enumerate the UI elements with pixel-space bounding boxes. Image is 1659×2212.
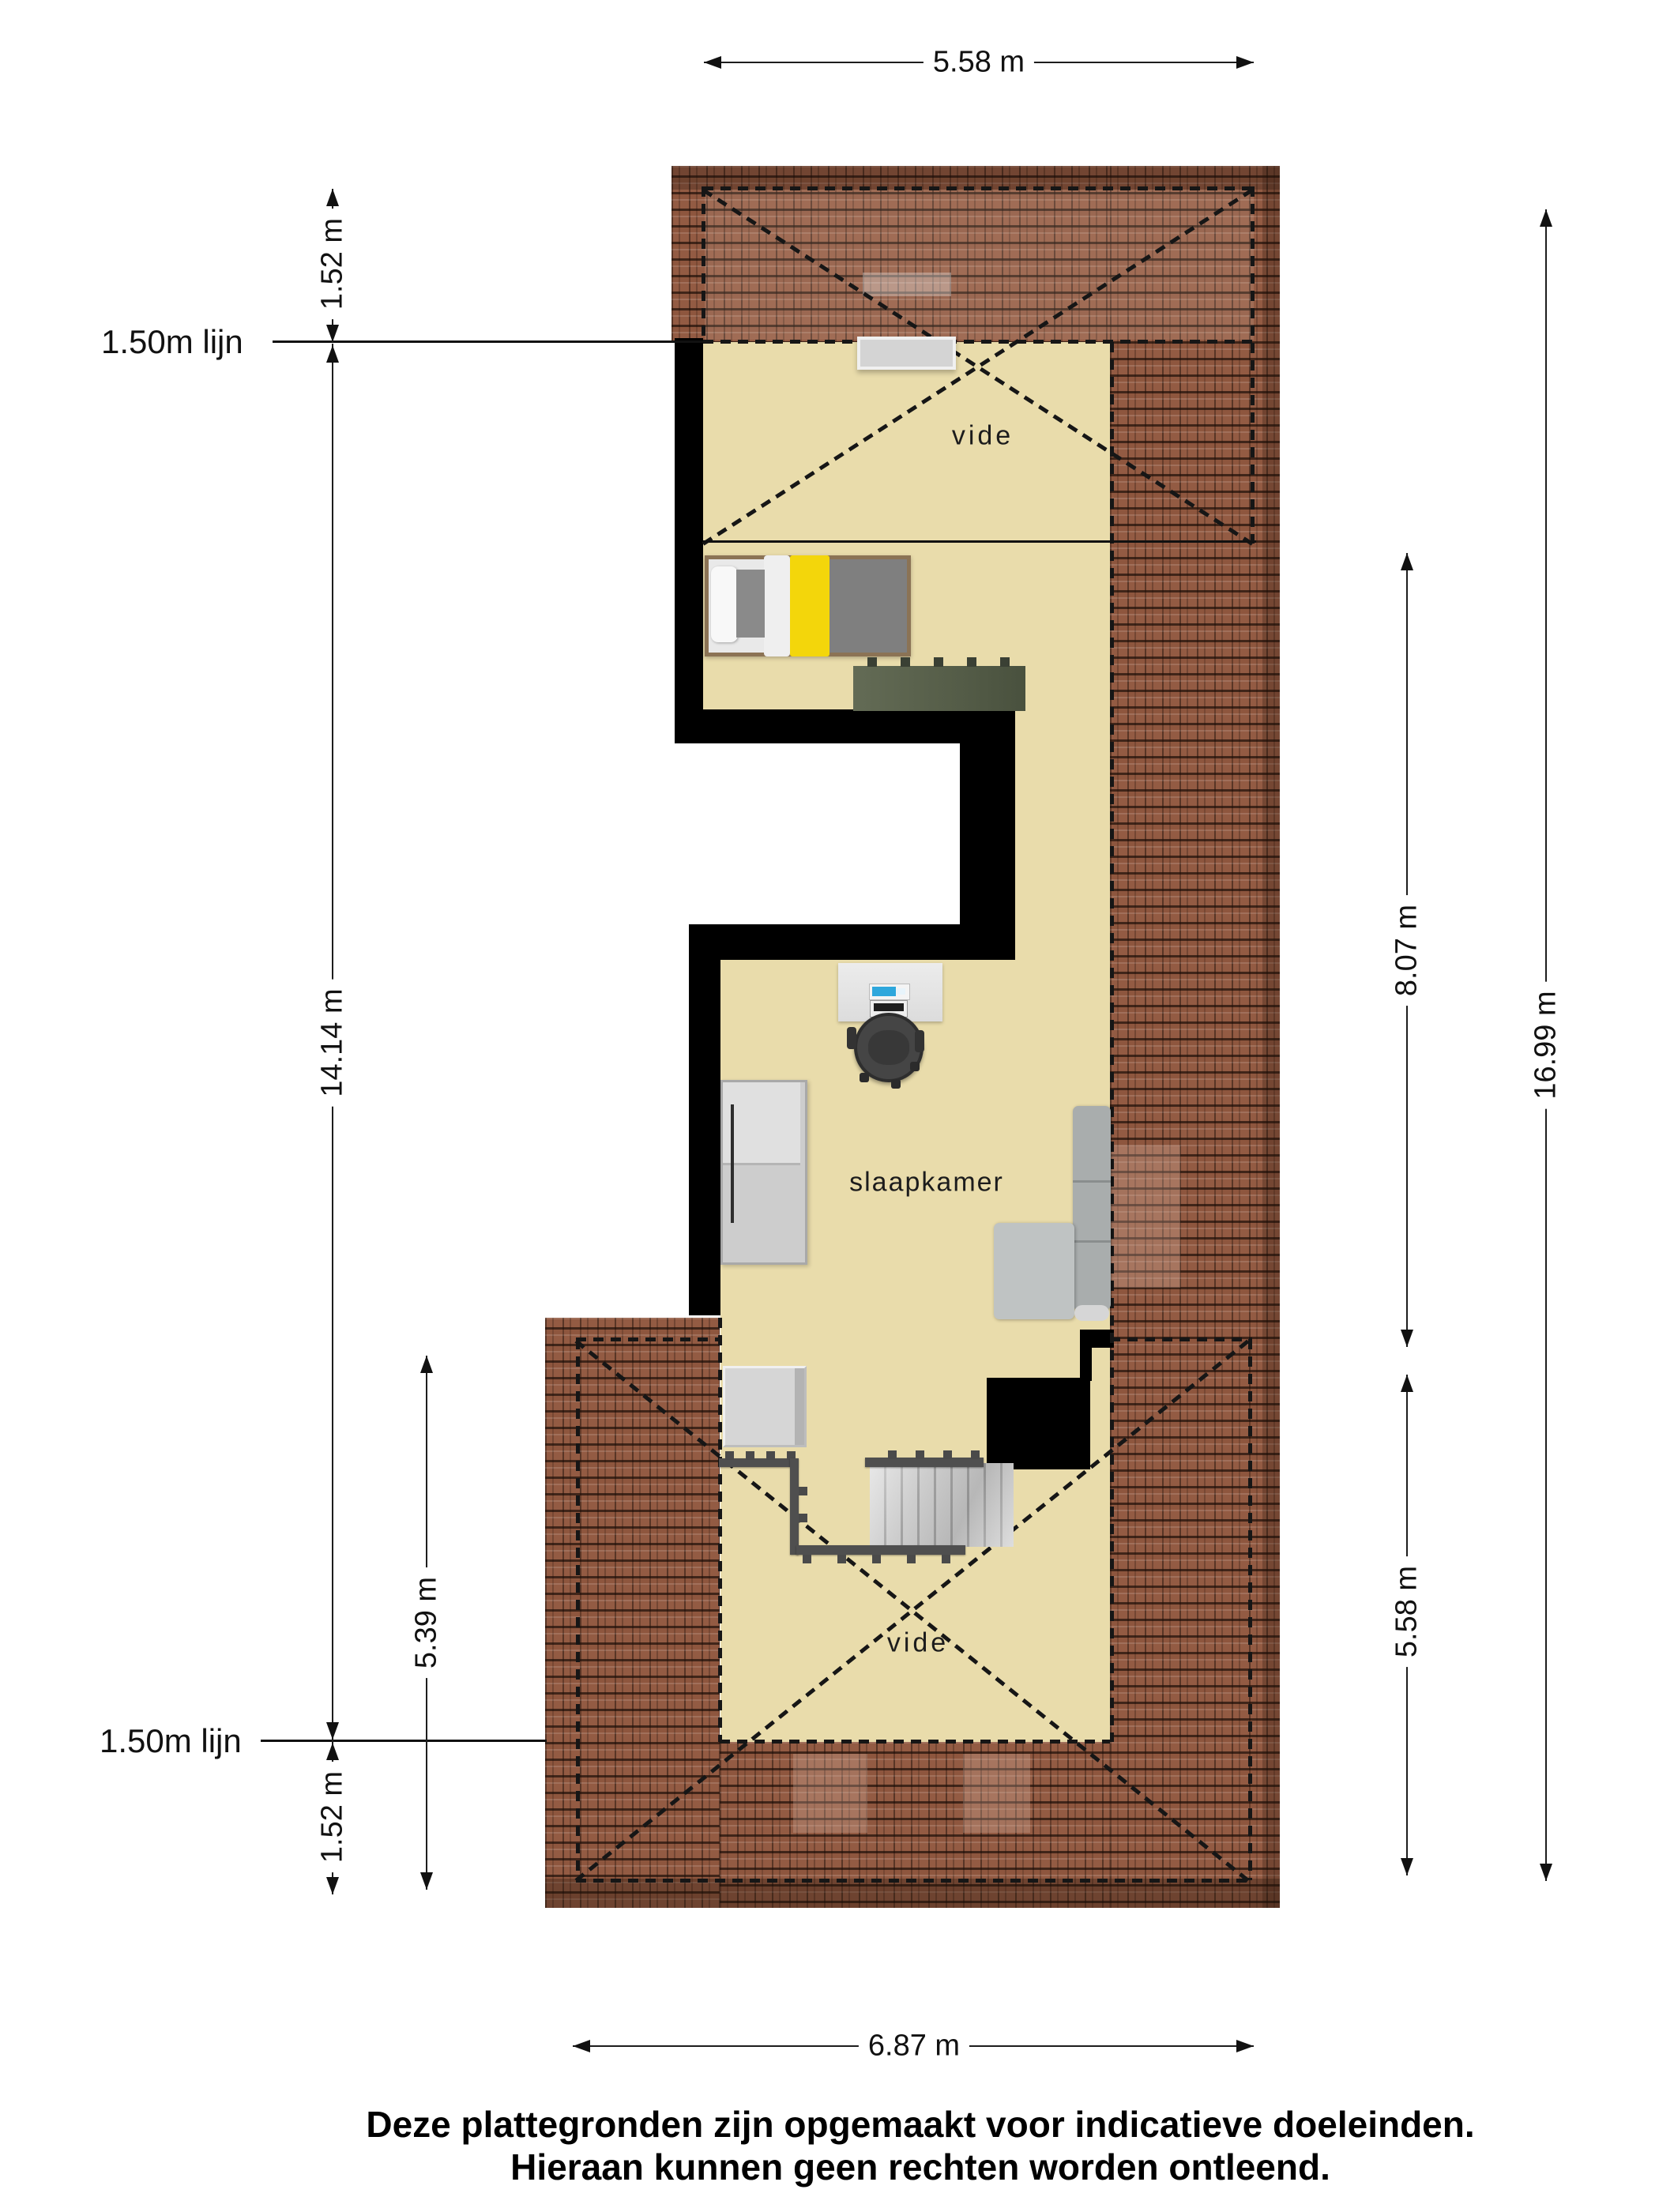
dim-label-right-room: 8.07 m (1389, 895, 1426, 1006)
dim-label-left-eave-bottom: 1.52 m (314, 1762, 352, 1872)
exterior-notch (703, 743, 960, 924)
bed-folded-blanket (736, 570, 765, 638)
computer-monitor (869, 984, 910, 1000)
dresser-knob (867, 657, 877, 667)
chair-armrest (915, 1030, 924, 1052)
floor-right-edge-dashed (1110, 342, 1114, 1742)
wall-connector-vertical (960, 709, 1015, 960)
roof-window-ghost (863, 273, 951, 296)
bed-duvet (829, 559, 907, 653)
railing-post (799, 1487, 807, 1495)
roof-inner-highlight (705, 190, 1254, 340)
dresser (853, 666, 1025, 711)
dim-label-left-eave-top: 1.52 m (314, 209, 352, 319)
monitor-screen-glare (897, 988, 905, 995)
lower-roof-outline-top-dashed-b (1110, 1337, 1252, 1341)
lower-roof-outline-right-dashed (1248, 1339, 1252, 1880)
arrowhead (326, 345, 339, 363)
arrowhead (1540, 209, 1552, 227)
lower-roof-outline-top-dashed-a (576, 1337, 720, 1341)
room-label-vide-bottom: vide (887, 1628, 949, 1659)
arrowhead (326, 189, 339, 206)
railing-post (943, 1450, 952, 1459)
dim-label-left-total: 14.14 m (314, 979, 352, 1106)
chimney-block (987, 1378, 1090, 1469)
railing-post (837, 1555, 846, 1563)
arrowhead (326, 1877, 339, 1894)
lower-roof-outline-bottom-dashed (576, 1879, 1252, 1883)
railing-post (799, 1514, 807, 1522)
line-150m-top-dashed (703, 340, 1255, 344)
floor-left-edge-lower-dashed (718, 1318, 722, 1742)
wall-left-lower (689, 924, 720, 1315)
arrowhead (573, 2040, 590, 2052)
wardrobe-open-door (723, 1082, 800, 1165)
railing-post (872, 1555, 881, 1563)
cabinet-side-shadow (795, 1368, 804, 1445)
roof-window (857, 337, 956, 370)
office-chair (854, 1013, 924, 1082)
wardrobe (720, 1080, 807, 1265)
railing-post (916, 1450, 924, 1459)
arrowhead (1540, 1864, 1552, 1881)
monitor-screen (872, 987, 896, 996)
bed (705, 555, 911, 656)
line-150m-bottom (261, 1740, 547, 1742)
dim-label-right-lower: 5.58 m (1389, 1556, 1426, 1667)
keyboard-keys (874, 1003, 904, 1011)
wall-step-bar (1080, 1330, 1114, 1348)
dresser-knob (901, 657, 910, 667)
stairs-sheen (870, 1463, 1014, 1547)
lower-vide-ghost-furniture (963, 1754, 1030, 1833)
arrowhead (326, 325, 339, 342)
dim-label-top-width: 5.58 m (924, 44, 1034, 81)
wall-horizontal-upper (675, 709, 960, 743)
railing-post (725, 1451, 734, 1460)
railing-post (888, 1450, 897, 1459)
bed-pillow (711, 566, 738, 642)
wall-step-sliver (1080, 1348, 1092, 1381)
roof-outline-right-dashed (1251, 186, 1255, 544)
arrowhead (1401, 1375, 1413, 1392)
vide-top-boundary-line (703, 540, 1256, 543)
floor-lower (720, 960, 1110, 1742)
chair-wheel (860, 1073, 869, 1082)
couch-ghost-under-roof (1111, 1145, 1180, 1288)
couch-cushion-line (1073, 1240, 1111, 1243)
railing-post (971, 1450, 980, 1459)
roof-outline-left-dashed (702, 186, 705, 340)
roof-eave-shadow (545, 1879, 1280, 1908)
arrowhead (704, 56, 721, 69)
couch-chaise (994, 1223, 1074, 1319)
dim-label-right-total: 16.99 m (1528, 981, 1565, 1108)
couch-backrest (1073, 1106, 1111, 1310)
roof-lower-left-band (545, 1318, 720, 1908)
bed-accent-stripe (790, 555, 829, 656)
wardrobe-handle (731, 1104, 734, 1223)
arrowhead (420, 1872, 433, 1890)
lower-roof-outline-left-dashed (576, 1339, 580, 1880)
arrowhead (1401, 1330, 1413, 1347)
chair-wheel (910, 1062, 920, 1071)
railing-post (803, 1555, 811, 1563)
dresser-knob (967, 657, 976, 667)
couch-cushion-line (1073, 1180, 1111, 1183)
dim-label-left-lower: 5.39 m (408, 1567, 446, 1678)
railing-corner-vertical (790, 1458, 799, 1555)
line-150m-bottom-label: 1.50m lijn (100, 1722, 242, 1760)
railing-stairs-top (865, 1458, 984, 1467)
wall-horizontal-middle (689, 924, 1015, 960)
railing-bottom (796, 1545, 965, 1555)
wall-left-upper (675, 338, 703, 743)
chair-armrest (847, 1027, 856, 1049)
railing-post (766, 1451, 775, 1460)
dim-label-bottom-width: 6.87 m (859, 2028, 969, 2065)
railing-post (746, 1451, 754, 1460)
arrowhead (1401, 553, 1413, 570)
arrowhead (1401, 1858, 1413, 1875)
railing-post (907, 1555, 916, 1563)
footer-disclaimer-line2: Hieraan kunnen geen rechten worden ontle… (0, 2146, 1659, 2188)
floor-bottom-edge-dashed (720, 1740, 1110, 1744)
arrowhead (1236, 2040, 1254, 2052)
line-150m-top-label: 1.50m lijn (101, 323, 243, 361)
arrowhead (420, 1356, 433, 1373)
chair-seat-inner (868, 1030, 909, 1065)
stairs (870, 1463, 1014, 1547)
floorplan-page: vide slaapkamer vide 1.50m lijn 1.50m li… (0, 0, 1659, 2212)
couch-armrest (1074, 1305, 1109, 1321)
dresser-knob (1000, 657, 1010, 667)
room-label-bedroom: slaapkamer (849, 1168, 1004, 1198)
room-label-vide-top: vide (952, 421, 1014, 452)
arrowhead (326, 1743, 339, 1760)
dresser-knob (934, 657, 943, 667)
lower-vide-ghost-furniture (793, 1754, 867, 1833)
arrowhead (1236, 56, 1254, 69)
cabinet (723, 1366, 807, 1447)
chair-wheel (891, 1079, 901, 1089)
arrowhead (326, 1722, 339, 1740)
roof-right-edge-shadow (1262, 166, 1280, 1908)
footer-disclaimer-line1: Deze plattegronden zijn opgemaakt voor i… (0, 2103, 1659, 2146)
railing-post (942, 1555, 950, 1563)
roof-outline-top-dashed (703, 186, 1255, 190)
bed-sheet-fold (764, 555, 790, 656)
